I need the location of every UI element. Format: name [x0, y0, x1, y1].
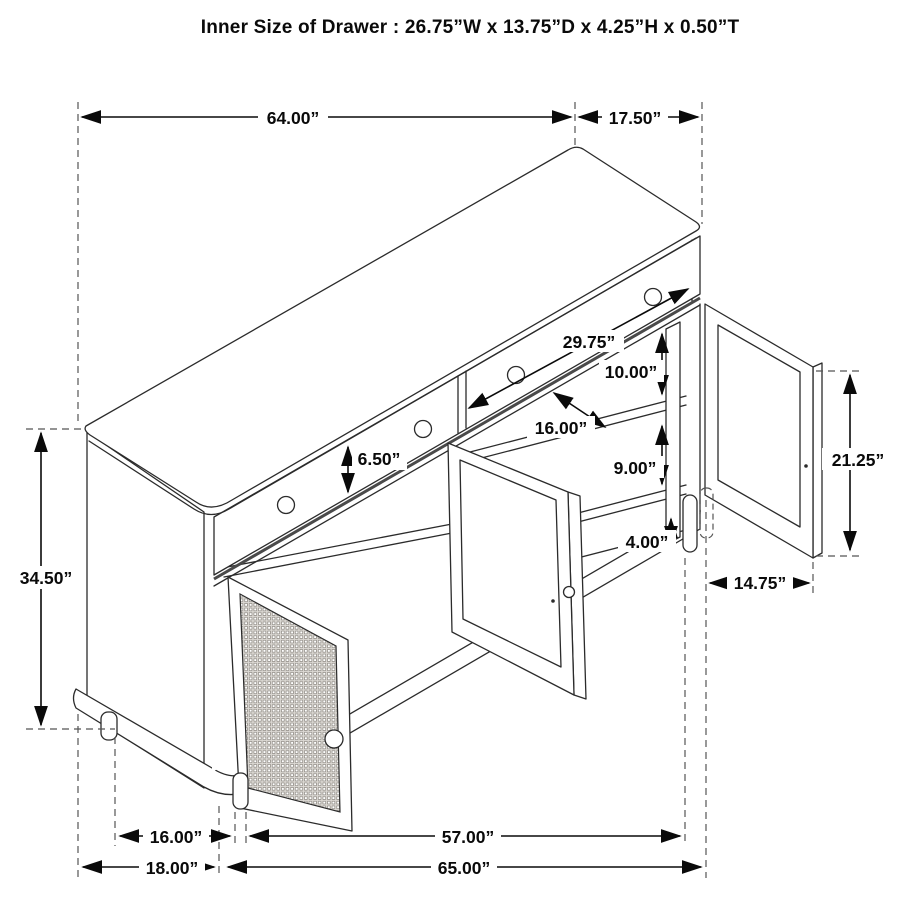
dim-label-6-50: 6.50”	[358, 449, 401, 469]
dim-door-width: 14.75”	[710, 571, 809, 593]
dim-label-16-00-floor: 16.00”	[150, 827, 203, 847]
door-pin	[551, 599, 555, 603]
dim-door-height: 21.25”	[822, 375, 894, 550]
door-pin	[804, 464, 808, 468]
sideboard-cabinet	[74, 147, 823, 831]
dim-leg-span-side: 16.00”	[120, 825, 230, 847]
right-door-open[interactable]	[705, 304, 822, 558]
drawer-knob[interactable]	[415, 421, 432, 438]
furniture-dimension-diagram: Inner Size of Drawer : 26.75”W x 13.75”D…	[0, 0, 900, 900]
dim-label-16-00: 16.00”	[535, 418, 588, 438]
dim-label-18-00: 18.00”	[146, 858, 199, 878]
drawer-knob[interactable]	[278, 497, 295, 514]
front-right-leg	[683, 495, 697, 552]
dim-label-57-00: 57.00”	[442, 827, 495, 847]
dim-label-64: 64.00”	[267, 108, 320, 128]
dim-top-depth: 17.50”	[579, 105, 698, 129]
front-left-leg	[233, 773, 248, 809]
dim-label-34-50: 34.50”	[20, 568, 73, 588]
door-handle-notch	[564, 587, 575, 598]
dim-label-17-50: 17.50”	[609, 108, 662, 128]
dim-leg-span-front: 57.00”	[250, 825, 680, 847]
dim-floor-width: 65.00”	[228, 856, 701, 878]
dim-floor-depth: 18.00”	[83, 856, 214, 878]
drawing-canvas: Inner Size of Drawer : 26.75”W x 13.75”D…	[0, 0, 900, 900]
dim-top-width: 64.00”	[82, 105, 571, 129]
drawer-knob[interactable]	[645, 289, 662, 306]
dim-label-9-00: 9.00”	[614, 458, 657, 478]
dim-label-14-75: 14.75”	[734, 573, 787, 593]
dim-label-21-25: 21.25”	[832, 450, 885, 470]
drawing-title: Inner Size of Drawer : 26.75”W x 13.75”D…	[201, 17, 740, 38]
back-left-leg	[101, 712, 117, 740]
dim-label-65-00: 65.00”	[438, 858, 491, 878]
dim-label-29-75: 29.75”	[563, 332, 616, 352]
drawer-knob[interactable]	[508, 367, 525, 384]
dim-label-4-00: 4.00”	[626, 532, 669, 552]
cane-door-knob[interactable]	[325, 730, 343, 748]
dim-label-10-00: 10.00”	[605, 362, 658, 382]
dim-overall-height: 34.50”	[12, 433, 80, 725]
